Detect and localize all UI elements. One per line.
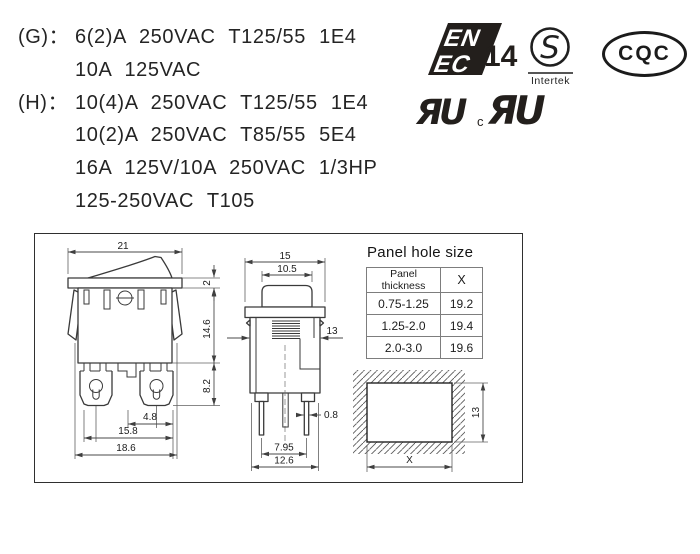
side-view-drawing: 15 10.5 13 0.8 7.95 12.6 [220,238,350,473]
dim-body-height: 14.6 [202,319,213,339]
cul-recognized-icon: ЯU [488,92,542,131]
rating-series-label: (H)： [18,87,75,120]
enec-mark-icon: EN EC 14 [424,20,524,82]
cell-x-1: 19.4 [441,315,483,337]
dim-top-width: 21 [117,241,129,252]
rating-text: 6(2)A 250VAC T125/55 1E4 [75,21,357,54]
cell-thickness-2: 2.0-3.0 [367,337,441,359]
dim-flange-thickness: 2 [202,280,213,286]
front-view-drawing: 21 2 14.6 8.2 4.8 15.8 18.6 [40,238,225,468]
ratings-block: (G)： 6(2)A 250VAC T125/55 1E4 10A 125VAC… [18,21,378,218]
rating-series-label: (G)： [18,21,75,54]
table-row: 0.75-1.25 19.2 [367,293,483,315]
cell-thickness-0: 0.75-1.25 [367,293,441,315]
table-row: 1.25-2.0 19.4 [367,315,483,337]
panel-hole-table: Panel thickness X 0.75-1.25 19.2 1.25-2.… [366,267,483,359]
rating-line: (G)： 6(2)A 250VAC T125/55 1E4 [18,21,378,54]
rating-text: 10(4)A 250VAC T125/55 1E4 [75,87,368,120]
dim-rocker-width: 10.5 [277,264,297,275]
cell-x-2: 19.6 [441,337,483,359]
intertek-s-letter: S [540,30,560,66]
dim-inner-width: 15.8 [118,426,138,437]
intertek-s-mark-icon: S Intertek [526,24,578,88]
rating-line: 10(2)A 250VAC T85/55 5E4 [18,119,378,152]
enec-number: 14 [484,40,518,73]
cqc-text: CQC [618,42,671,66]
intertek-name: Intertek [531,75,570,87]
dim-terminal-height: 8.2 [202,379,213,393]
panel-table-title: Panel hole size [367,244,483,261]
dim-pin-pitch: 7.95 [274,443,294,454]
rocker-switch-side-outline [245,286,325,446]
rating-line: 125-250VAC T105 [18,185,378,218]
rocker-switch-front-outline [68,257,182,364]
table-row: 2.0-3.0 19.6 [367,337,483,359]
dim-overall-width: 12.6 [274,456,294,467]
ul-canada-c-prefix: c [477,115,484,128]
panel-cutout-drawing: 13 X [350,365,495,480]
rating-line: (H)： 10(4)A 250VAC T125/55 1E4 [18,87,378,120]
col-header-x: X [441,268,483,293]
dim-overall-width: 18.6 [116,443,136,454]
rating-text: 10(2)A 250VAC T85/55 5E4 [75,119,357,152]
dim-cutout-height: 13 [471,407,482,419]
dim-terminal-pitch: 4.8 [143,412,157,423]
cell-x-0: 19.2 [441,293,483,315]
rating-series-label [18,185,75,218]
dim-snap-width: 13 [326,326,338,337]
rating-line: 10A 125VAC [18,54,378,87]
col-header-panel-thickness: Panel thickness [367,268,441,293]
cutout-rectangle [367,383,452,442]
rating-series-label [18,152,75,185]
rating-series-label [18,119,75,152]
dim-top-width: 15 [279,251,291,262]
dim-pin-thickness: 0.8 [324,410,338,421]
rating-text: 10A 125VAC [75,54,201,87]
panel-hole-size-section: Panel hole size Panel thickness X 0.75-1… [366,244,483,359]
rating-text: 16A 125V/10A 250VAC 1/3HP [75,152,378,185]
cqc-mark-icon: CQC [602,31,687,77]
table-header-row: Panel thickness X [367,268,483,293]
rating-series-label [18,54,75,87]
ul-marks: ЯU c ЯU [414,90,584,140]
ul-recognized-icon: ЯU [416,96,463,131]
dim-cutout-width: X [406,455,413,466]
cell-thickness-1: 1.25-2.0 [367,315,441,337]
rating-text: 125-250VAC T105 [75,185,255,218]
rating-line: 16A 125V/10A 250VAC 1/3HP [18,152,378,185]
